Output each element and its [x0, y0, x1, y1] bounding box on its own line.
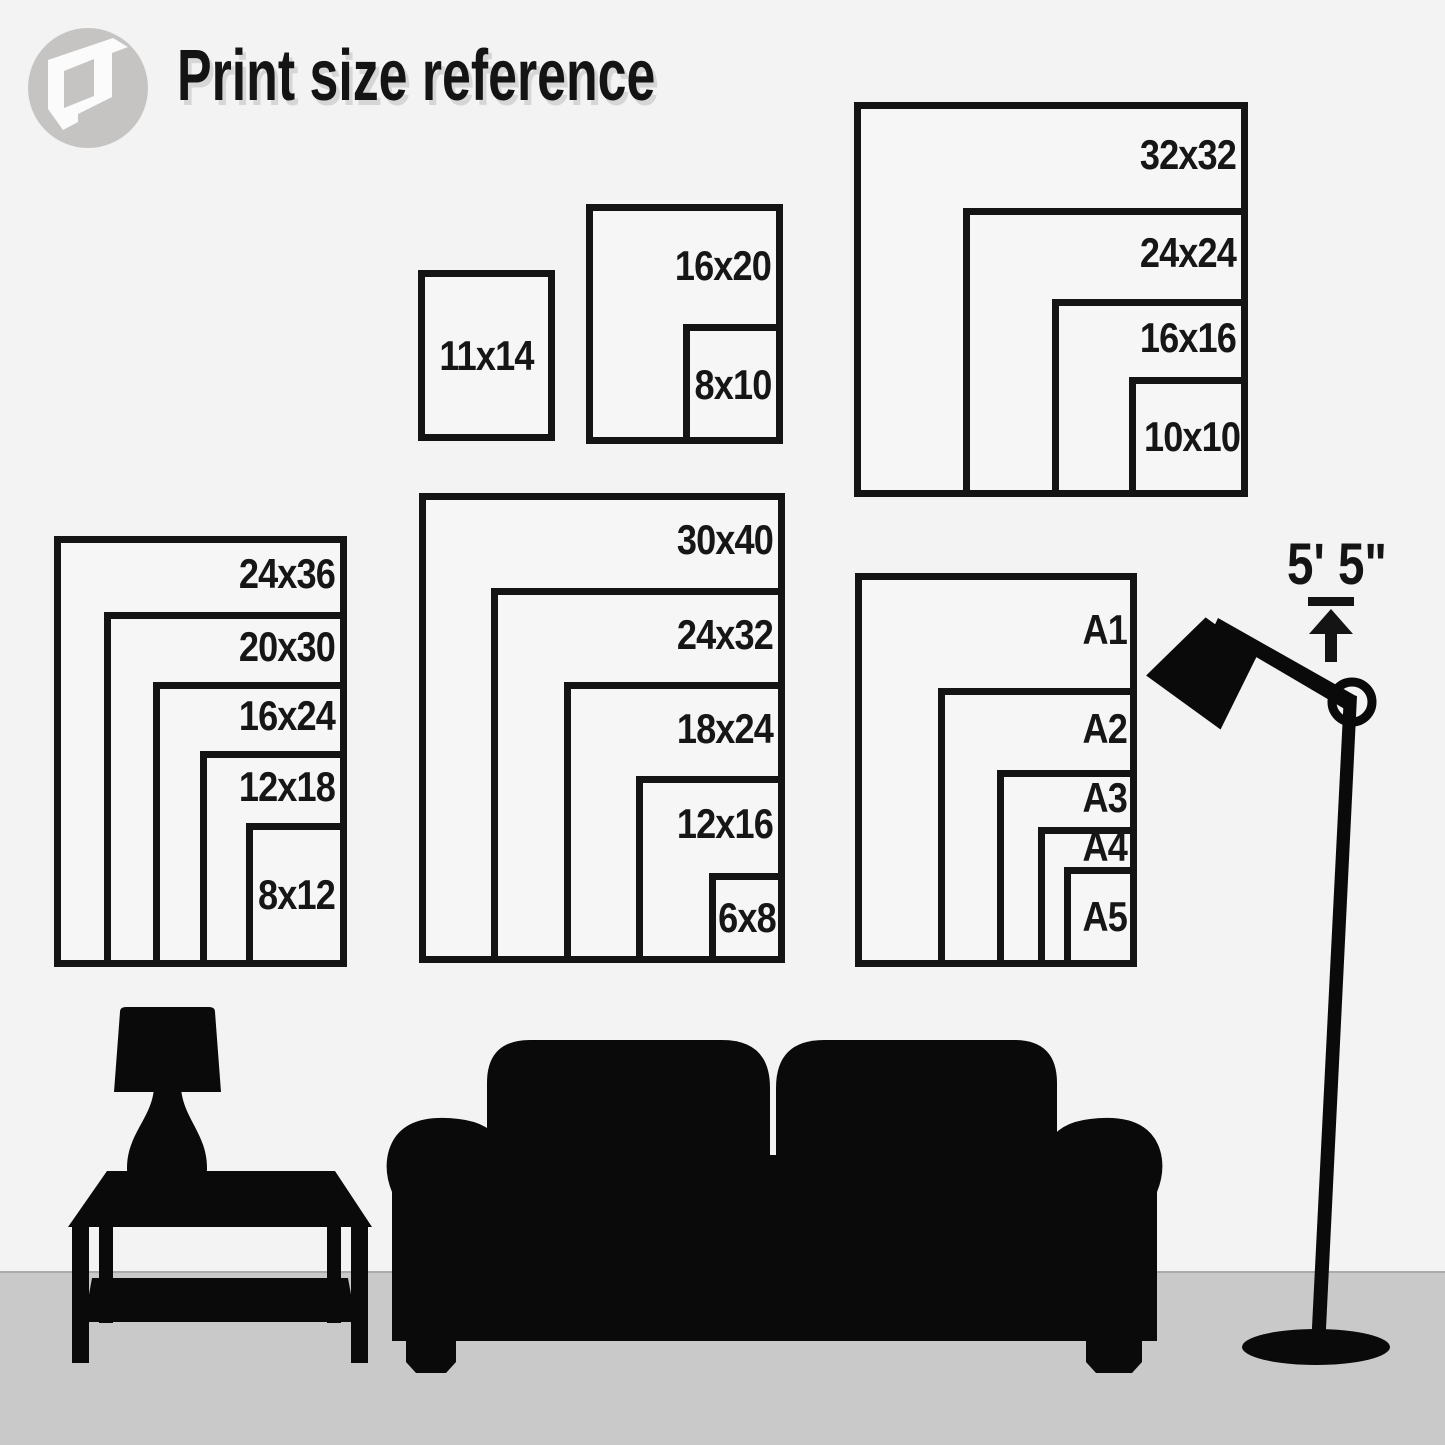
size-label-11x14: 11x14 — [428, 334, 546, 378]
size-label-30x40: 30x40 — [469, 518, 773, 562]
side-table-silhouette — [68, 1171, 372, 1363]
size-label-18x24: 18x24 — [593, 707, 773, 751]
size-label-10x10: 10x10 — [1144, 415, 1236, 459]
sofa-silhouette — [387, 1040, 1163, 1373]
size-label-20x30: 20x30 — [136, 625, 335, 669]
size-label-24x24: 24x24 — [1001, 231, 1236, 275]
height-arrow-icon — [1308, 597, 1354, 662]
size-label-a3: A3 — [1015, 776, 1127, 820]
size-label-8x12: 8x12 — [253, 873, 340, 917]
size-label-16x16: 16x16 — [1078, 316, 1236, 360]
size-label-24x36: 24x36 — [93, 552, 335, 596]
size-label-24x32: 24x32 — [530, 613, 773, 657]
print-size-reference-page: Print size reference — [0, 0, 1445, 1445]
size-label-32x32: 32x32 — [907, 133, 1236, 177]
floor-lamp-silhouette — [1146, 609, 1390, 1365]
size-label-16x24: 16x24 — [178, 694, 335, 738]
size-label-8x10: 8x10 — [690, 363, 776, 407]
size-label-a1: A1 — [893, 608, 1127, 652]
size-label-12x16: 12x16 — [655, 802, 773, 846]
size-label-12x18: 12x18 — [219, 765, 335, 809]
size-label-a5: A5 — [1073, 895, 1127, 939]
size-label-a4: A4 — [1050, 825, 1127, 869]
height-reference-label: 5' 5" — [1267, 536, 1406, 594]
size-label-a2: A2 — [964, 707, 1127, 751]
size-label-16x20: 16x20 — [612, 244, 771, 288]
table-lamp-silhouette — [114, 1007, 221, 1208]
size-label-6x8: 6x8 — [714, 896, 779, 940]
